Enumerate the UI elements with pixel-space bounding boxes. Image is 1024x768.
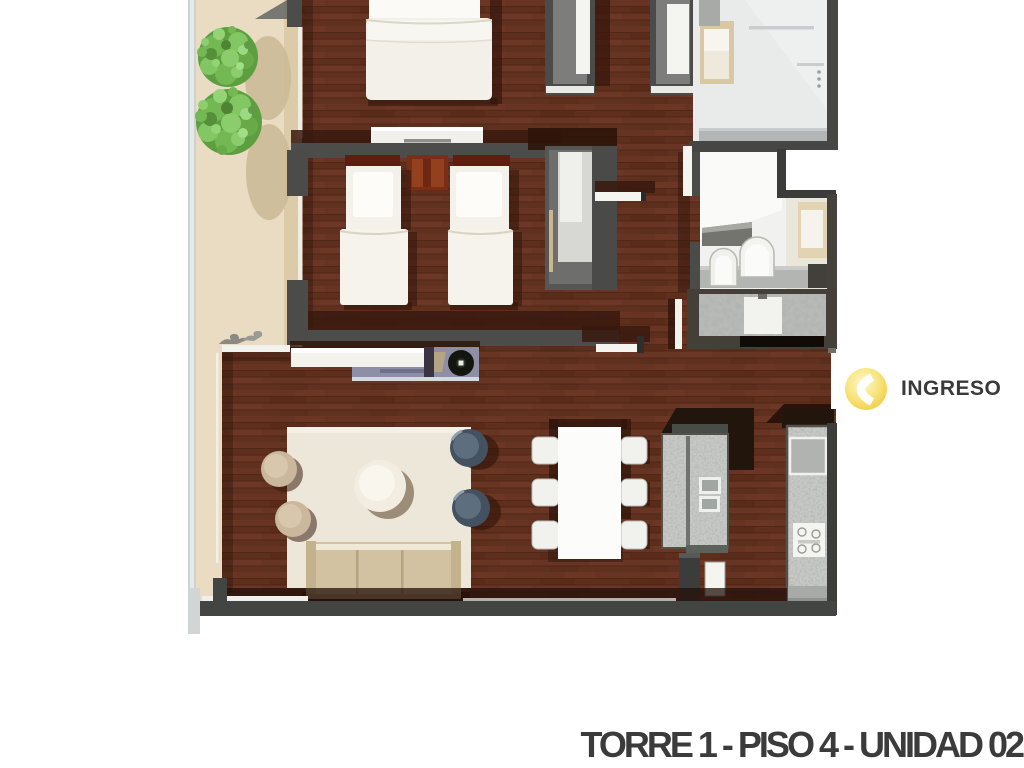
svg-text:TORRE 1 - PISO 4 - UNIDAD 02: TORRE 1 - PISO 4 - UNIDAD 02 [581,724,1024,765]
svg-text:INGRESO: INGRESO [901,377,1001,400]
